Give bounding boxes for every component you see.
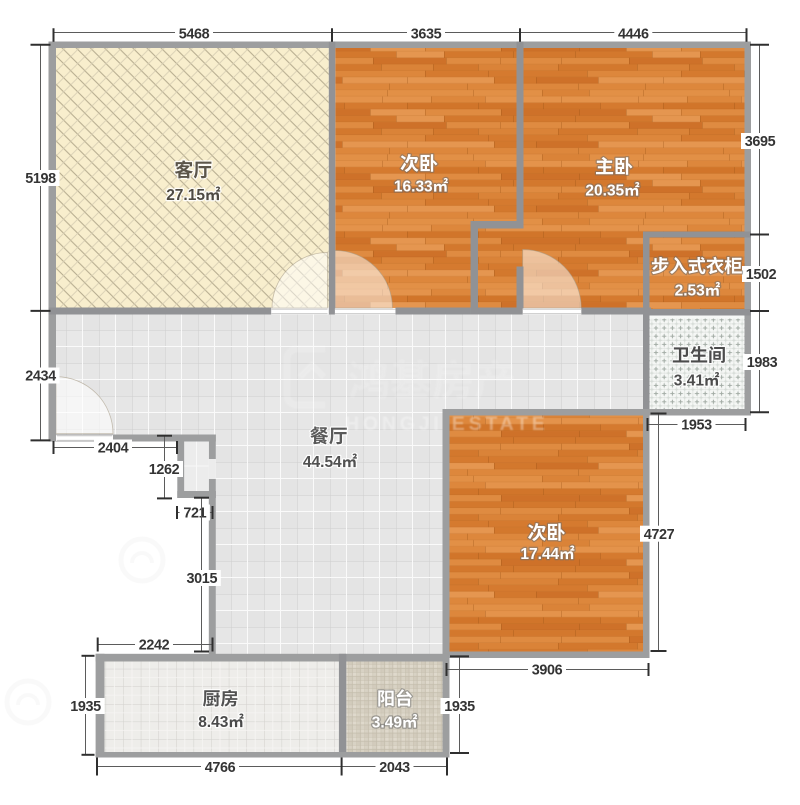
svg-text:1262: 1262 [149,462,180,478]
svg-text:3.41: 3.41 [674,373,705,390]
svg-text:2242: 2242 [139,638,170,654]
svg-text:17.44: 17.44 [520,546,559,563]
svg-text:3015: 3015 [186,571,217,587]
svg-text:1983: 1983 [747,355,778,371]
svg-text:4446: 4446 [618,26,649,42]
svg-text:721: 721 [183,506,206,522]
svg-text:3906: 3906 [532,663,563,679]
svg-text:3635: 3635 [411,26,442,42]
svg-text:4766: 4766 [205,760,236,776]
svg-text:HONGJI ESTATE: HONGJI ESTATE [345,413,549,435]
svg-text:3695: 3695 [745,134,776,150]
svg-text:5468: 5468 [179,26,210,42]
svg-text:4727: 4727 [644,527,675,543]
svg-text:20.35: 20.35 [585,183,624,200]
svg-text:27.15: 27.15 [166,187,205,204]
svg-text:2434: 2434 [25,369,56,385]
svg-text:1953: 1953 [681,418,712,434]
svg-text:16.33: 16.33 [394,179,433,196]
svg-text:8.43: 8.43 [198,714,229,731]
svg-text:44.54: 44.54 [303,454,342,471]
svg-text:1935: 1935 [70,699,101,715]
svg-text:2043: 2043 [379,760,410,776]
svg-text:2404: 2404 [98,441,129,457]
svg-text:2.53: 2.53 [675,283,706,300]
svg-text:5198: 5198 [25,171,56,187]
svg-text:3.49: 3.49 [372,715,403,732]
svg-text:1502: 1502 [746,267,777,283]
svg-text:1935: 1935 [444,699,475,715]
